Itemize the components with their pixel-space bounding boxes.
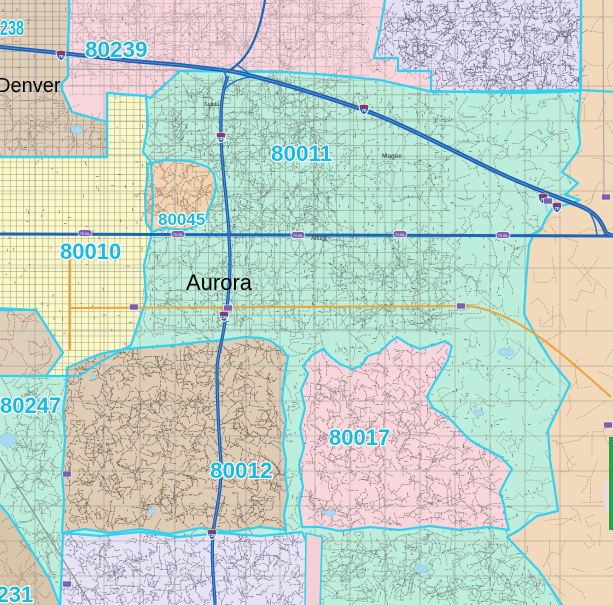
svg-text:70: 70: [554, 206, 560, 211]
svg-text:70-BL: 70-BL: [80, 232, 90, 236]
svg-text:80011: 80011: [271, 141, 332, 166]
svg-text:80017: 80017: [329, 425, 390, 450]
svg-text:70: 70: [361, 108, 367, 113]
svg-text:80239: 80239: [85, 37, 148, 62]
svg-text:80045: 80045: [158, 210, 205, 229]
svg-text:225: 225: [208, 533, 216, 538]
svg-text:80010: 80010: [60, 239, 121, 264]
svg-text:80012: 80012: [210, 458, 273, 483]
svg-text:225: 225: [217, 136, 225, 141]
svg-text:Altura: Altura: [311, 236, 327, 242]
svg-text:70-BL: 70-BL: [173, 233, 183, 237]
svg-text:Aurora: Aurora: [186, 270, 253, 295]
svg-text:70-BL: 70-BL: [293, 234, 303, 238]
svg-text:225: 225: [220, 315, 228, 320]
svg-text:70-BL: 70-BL: [498, 234, 508, 238]
svg-text:Salida: Salida: [204, 102, 220, 108]
svg-text:Denver: Denver: [0, 75, 61, 97]
svg-text:80238: 80238: [0, 17, 24, 40]
svg-text:80247: 80247: [0, 393, 61, 418]
svg-text:70-BL: 70-BL: [395, 233, 405, 237]
svg-text:70: 70: [58, 54, 64, 59]
svg-text:80231: 80231: [0, 582, 33, 605]
svg-text:Magee: Magee: [382, 153, 402, 160]
